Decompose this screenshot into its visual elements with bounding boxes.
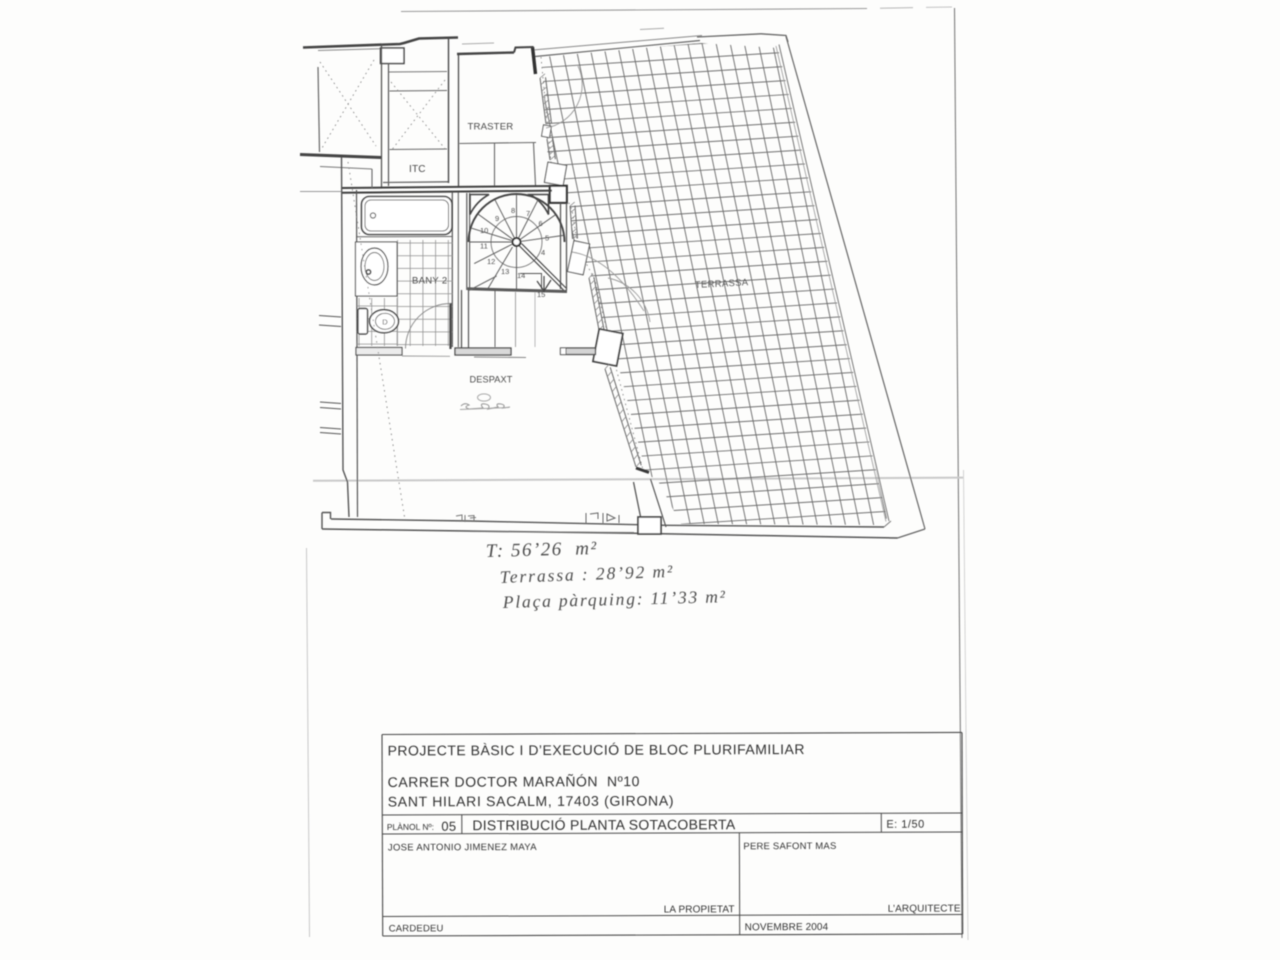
svg-text:D: D — [382, 318, 388, 327]
svg-text:6: 6 — [539, 219, 543, 228]
svg-text:5: 5 — [545, 234, 549, 243]
svg-text:BANY 2: BANY 2 — [412, 276, 447, 287]
svg-text:14: 14 — [517, 271, 525, 280]
svg-text:13: 13 — [501, 267, 509, 276]
svg-text:PERE SAFONT MAS: PERE SAFONT MAS — [743, 841, 836, 852]
svg-text:ITC: ITC — [409, 164, 426, 175]
svg-text:SANT HILARI SACALM, 17403 (GIR: SANT HILARI SACALM, 17403 (GIRONA) — [388, 792, 675, 809]
svg-text:05: 05 — [441, 819, 456, 834]
svg-text:CARRER DOCTOR MARAÑÓN Nº10: CARRER DOCTOR MARAÑÓN Nº10 — [388, 773, 640, 790]
svg-text:8: 8 — [511, 206, 515, 215]
svg-text:PROJECTE BÀSIC I D’EXECUCIÓ DE: PROJECTE BÀSIC I D’EXECUCIÓ DE BLOC PLUR… — [388, 741, 805, 758]
svg-text:NOVEMBRE 2004: NOVEMBRE 2004 — [745, 922, 829, 933]
svg-text:11: 11 — [480, 242, 488, 251]
svg-text:7: 7 — [526, 209, 530, 218]
svg-text:DISTRIBUCIÓ PLANTA SOTACOBERTA: DISTRIBUCIÓ PLANTA SOTACOBERTA — [472, 816, 736, 833]
svg-text:E: 1/50: E: 1/50 — [886, 819, 924, 831]
svg-text:12: 12 — [487, 257, 495, 266]
svg-text:15: 15 — [537, 290, 545, 299]
svg-text:10: 10 — [480, 226, 488, 235]
svg-text:JOSE ANTONIO JIMENEZ MAYA: JOSE ANTONIO JIMENEZ MAYA — [388, 842, 537, 854]
svg-text:DESPAXT: DESPAXT — [470, 375, 513, 385]
svg-text:PLÀNOL Nº:: PLÀNOL Nº: — [387, 822, 434, 832]
svg-text:CARDEDEU: CARDEDEU — [389, 923, 444, 934]
svg-text:TRASTER: TRASTER — [468, 122, 514, 133]
svg-text:9: 9 — [495, 214, 499, 223]
svg-text:4: 4 — [541, 248, 545, 257]
svg-text:L’ARQUITECTE: L’ARQUITECTE — [888, 903, 961, 914]
svg-text:T: 56’26 m²: T: 56’26 m² — [486, 538, 598, 562]
svg-text:LA PROPIETAT: LA PROPIETAT — [664, 904, 735, 915]
